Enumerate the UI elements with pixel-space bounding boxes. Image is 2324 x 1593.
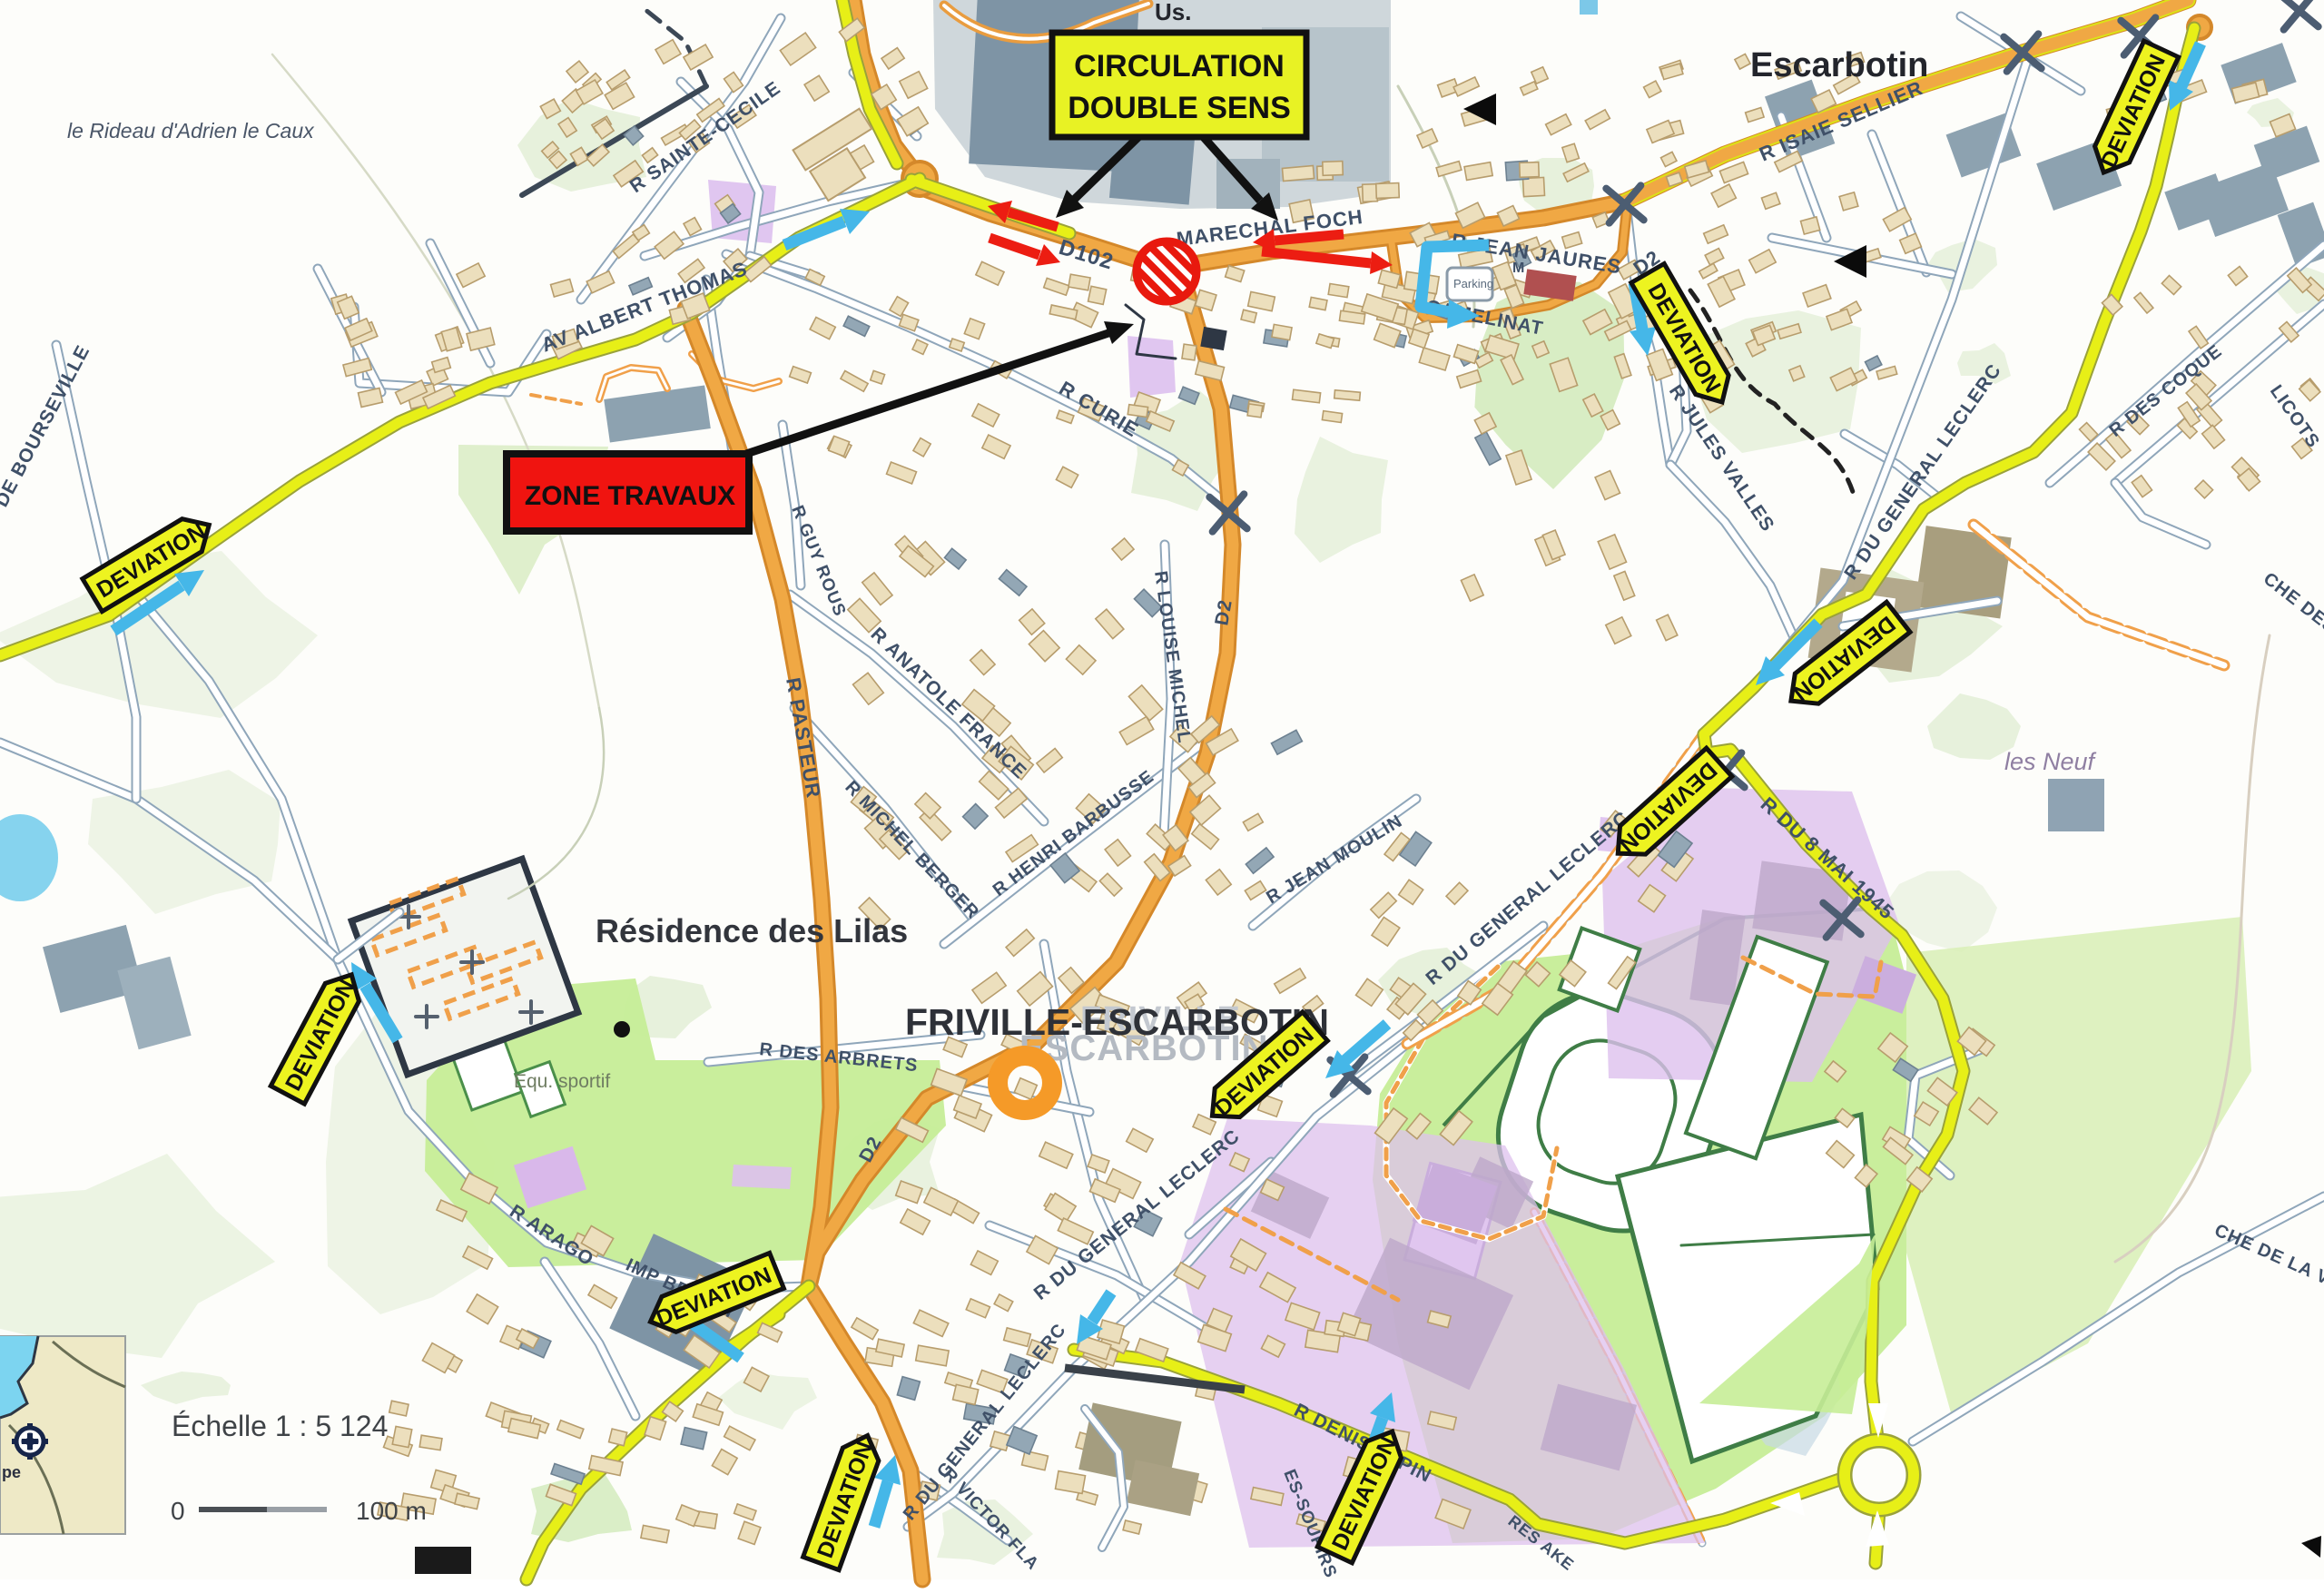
svg-text:Us.: Us.	[1155, 0, 1191, 25]
svg-text:CIRCULATION: CIRCULATION	[1074, 49, 1285, 84]
svg-text:M: M	[1512, 261, 1524, 276]
svg-text:les Neuf: les Neuf	[2004, 748, 2097, 775]
svg-text:FRIVILLE-ESCARBOTIN: FRIVILLE-ESCARBOTIN	[905, 1001, 1329, 1043]
svg-text:100 m: 100 m	[356, 1497, 427, 1525]
svg-text:pe: pe	[2, 1463, 21, 1481]
svg-text:Échelle 1 : 5 124: Échelle 1 : 5 124	[172, 1410, 388, 1442]
svg-text:DOUBLE SENS: DOUBLE SENS	[1068, 91, 1291, 125]
svg-text:ZONE TRAVAUX: ZONE TRAVAUX	[525, 481, 735, 511]
svg-text:Escarbotin: Escarbotin	[1750, 46, 1928, 84]
svg-text:Parking: Parking	[1453, 277, 1493, 290]
svg-text:0: 0	[171, 1497, 185, 1525]
svg-text:le Rideau d'Adrien le Caux: le Rideau d'Adrien le Caux	[67, 119, 315, 143]
svg-text:Equ. sportif: Equ. sportif	[514, 1071, 610, 1092]
svg-text:Résidence des Lilas: Résidence des Lilas	[596, 912, 908, 949]
